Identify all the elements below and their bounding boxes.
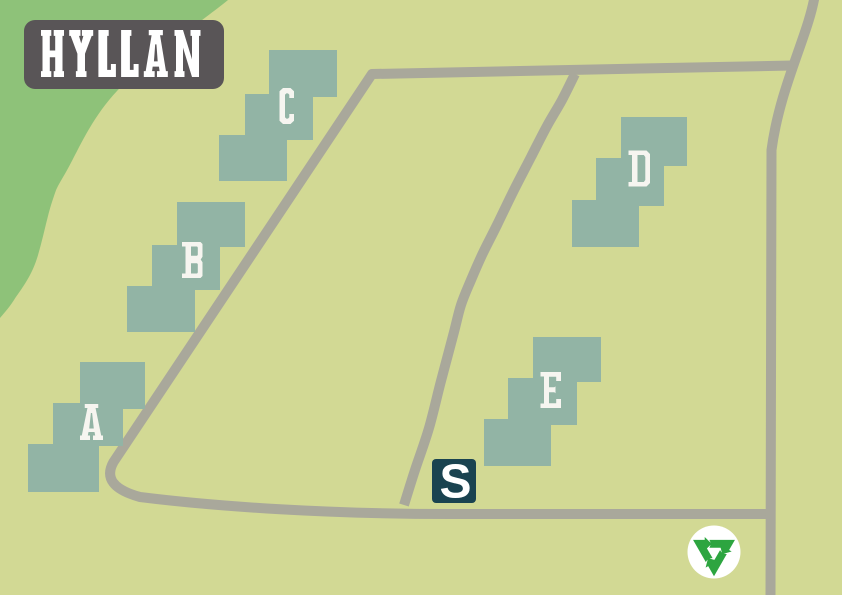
svg-text:S: S	[439, 456, 471, 509]
